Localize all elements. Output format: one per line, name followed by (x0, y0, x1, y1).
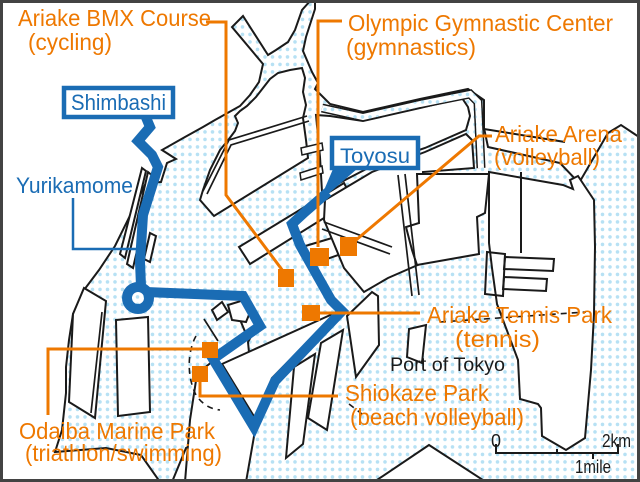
svg-text:(volleyball): (volleyball) (494, 144, 600, 170)
svg-text:Yurikamome: Yurikamome (16, 173, 133, 198)
svg-text:1mile: 1mile (575, 457, 611, 477)
svg-text:Shiokaze Park: Shiokaze Park (345, 380, 489, 406)
svg-text:(beach volleyball): (beach volleyball) (350, 404, 524, 430)
svg-text:2km: 2km (602, 431, 631, 451)
svg-text:Port of Tokyo: Port of Tokyo (390, 355, 505, 376)
svg-text:Ariake BMX Course: Ariake BMX Course (18, 5, 211, 31)
svg-text:(tennis): (tennis) (455, 326, 540, 352)
svg-text:Ariake Tennis Park: Ariake Tennis Park (427, 302, 612, 328)
svg-text:(cycling): (cycling) (28, 29, 112, 55)
svg-text:(gymnastics): (gymnastics) (346, 34, 476, 60)
svg-text:Toyosu: Toyosu (340, 145, 410, 168)
svg-text:Olympic Gymnastic Center: Olympic Gymnastic Center (348, 10, 613, 36)
svg-text:Shimbashi: Shimbashi (71, 90, 166, 115)
svg-text:(triathlon/swimming): (triathlon/swimming) (25, 440, 222, 466)
svg-text:0: 0 (491, 431, 501, 451)
